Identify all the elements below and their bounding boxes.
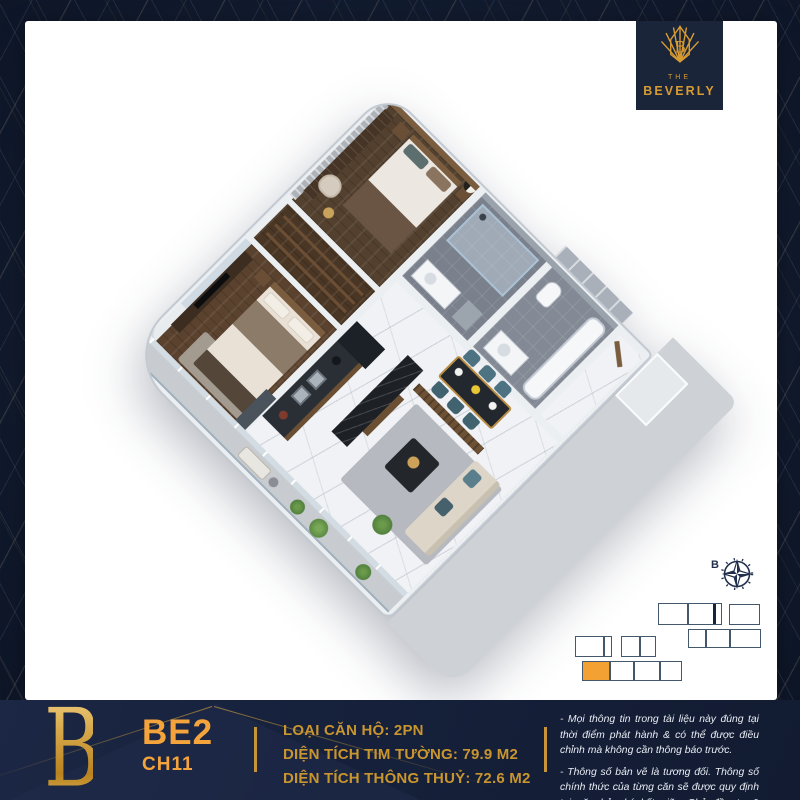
key-plan-highlighted-unit xyxy=(583,662,609,680)
key-plan-divider xyxy=(603,637,605,656)
disclaimer-text: - Mọi thông tin trong tài liệu này đúng … xyxy=(560,712,759,800)
brochure-page: B THE BEVERLY B B BE2 CH11 LOẠI CĂN HỘ: … xyxy=(0,0,800,800)
logo-fan-icon: B xyxy=(648,21,712,73)
footer-divider-left xyxy=(254,727,257,772)
footer-divider-right xyxy=(544,727,547,772)
footer-monogram: B xyxy=(44,686,93,800)
unit-specs: LOẠI CĂN HỘ: 2PNDIỆN TÍCH TIM TƯỜNG: 79.… xyxy=(283,719,545,790)
logo-word-the: THE xyxy=(668,74,691,81)
key-plan-unit-block xyxy=(729,604,760,625)
svg-text:B: B xyxy=(674,38,686,57)
brand-logo: B THE BEVERLY xyxy=(636,21,723,110)
compass-icon xyxy=(718,555,756,593)
unit-id: CH11 xyxy=(142,754,213,776)
unit-code: BE2 xyxy=(142,714,213,752)
disclaimer-line: - Mọi thông tin trong tài liệu này đúng … xyxy=(560,712,759,759)
disclaimer-line: - Thông số bản vẽ là tương đối. Thông số… xyxy=(560,765,759,800)
key-plan-divider xyxy=(639,637,641,656)
key-plan-unit-block xyxy=(688,629,761,648)
logo-word-beverly: BEVERLY xyxy=(643,84,716,98)
key-plan-divider xyxy=(659,662,661,680)
spec-line: DIỆN TÍCH TIM TƯỜNG: 79.9 M2 xyxy=(283,743,545,767)
key-plan-unit-block xyxy=(621,636,656,657)
key-plan-divider xyxy=(687,604,689,624)
spec-line: LOẠI CĂN HỘ: 2PN xyxy=(283,719,545,743)
key-plan-unit-block xyxy=(582,661,682,681)
key-plan-divider-thick xyxy=(713,604,716,624)
key-plan-divider xyxy=(609,662,611,680)
key-plan-unit-block xyxy=(575,636,612,657)
key-plan-divider xyxy=(633,662,635,680)
key-plan-unit-block xyxy=(658,603,722,625)
key-plan-divider xyxy=(729,630,731,647)
unit-label: BE2 CH11 xyxy=(142,714,213,776)
spec-line: DIỆN TÍCH THÔNG THUỶ: 72.6 M2 xyxy=(283,767,545,791)
key-plan-divider xyxy=(705,630,707,647)
